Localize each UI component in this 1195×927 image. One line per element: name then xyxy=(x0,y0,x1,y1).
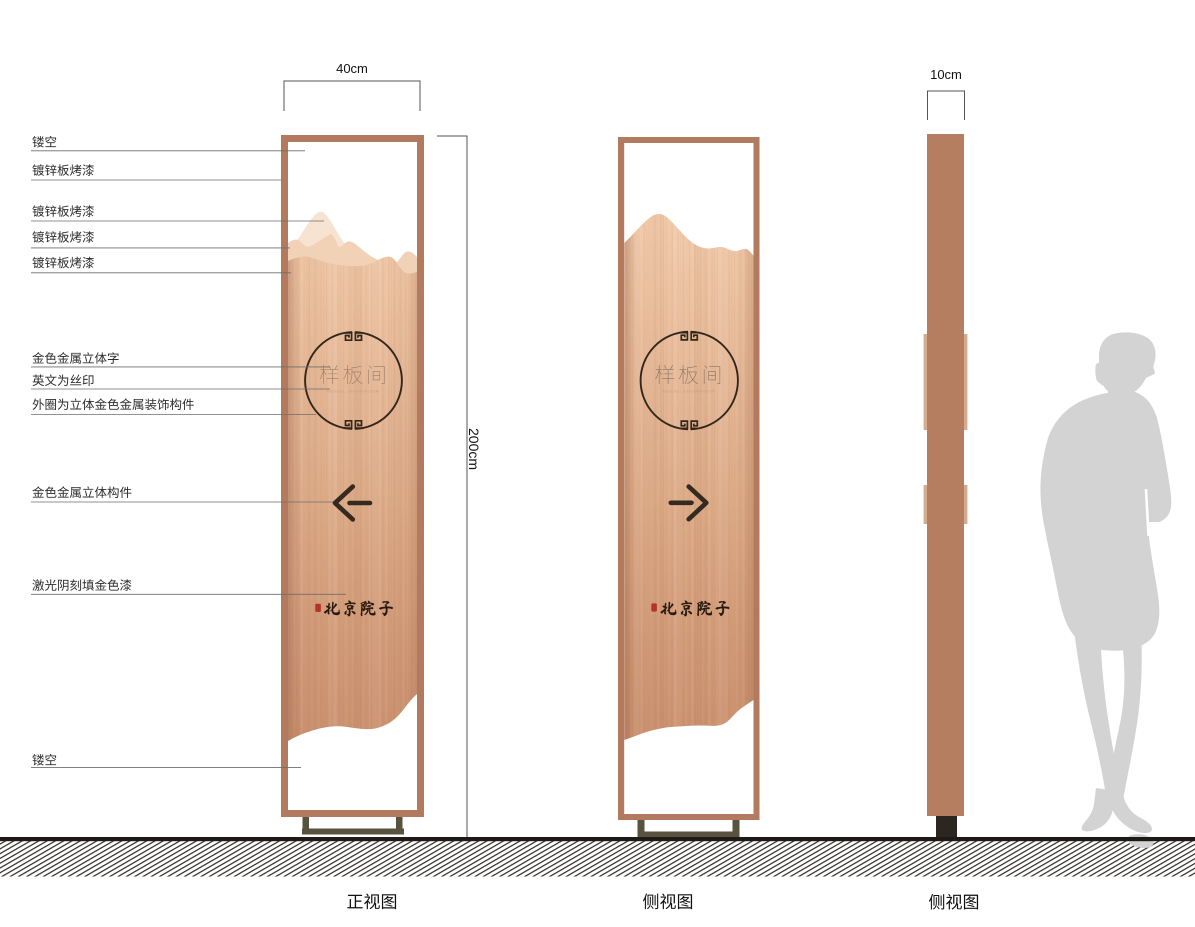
svg-text:10cm: 10cm xyxy=(930,67,962,82)
svg-text:40cm: 40cm xyxy=(336,61,368,76)
svg-text:MODEL SHOWROOM: MODEL SHOWROOM xyxy=(663,389,716,394)
svg-text:200cm: 200cm xyxy=(466,428,482,470)
svg-text:MODEL SHOWROOM: MODEL SHOWROOM xyxy=(327,389,380,394)
